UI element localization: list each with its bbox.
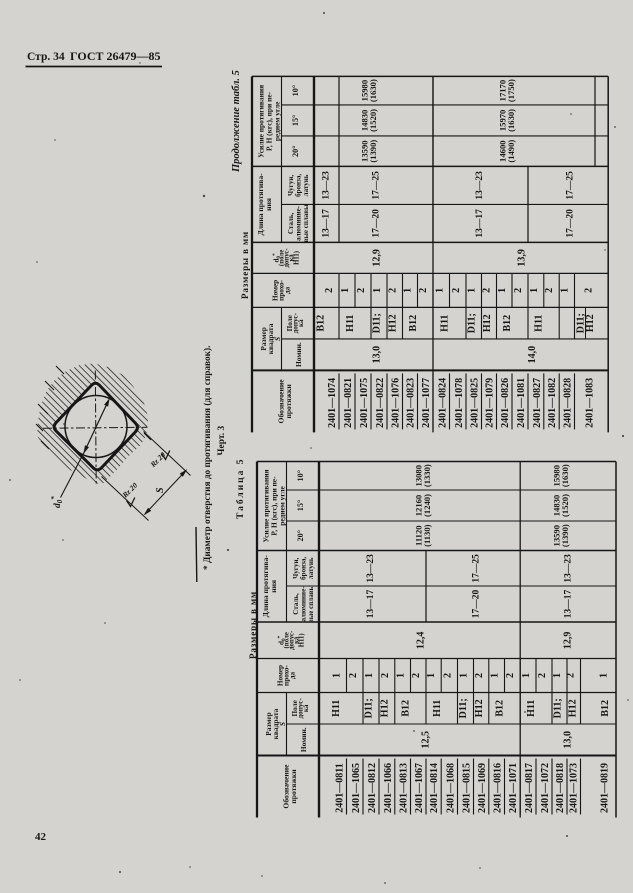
svg-text:1: 1: [396, 673, 407, 678]
svg-text:Стр. 34: Стр. 34: [27, 51, 65, 63]
svg-text:H11: H11: [534, 315, 545, 332]
svg-text:1: 1: [435, 288, 446, 293]
svg-text:1: 1: [459, 673, 470, 678]
svg-text:17—25: 17—25: [472, 554, 482, 583]
svg-text:10°: 10°: [296, 470, 305, 481]
svg-text:13—23: 13—23: [366, 554, 376, 583]
svg-text:2401—1066: 2401—1066: [383, 763, 394, 813]
svg-text:H12: H12: [474, 699, 485, 717]
svg-text:14,0: 14,0: [527, 346, 538, 364]
svg-text:B12: B12: [495, 700, 506, 717]
svg-text:12,9: 12,9: [372, 249, 383, 267]
svg-text:20°: 20°: [296, 530, 305, 541]
svg-text:1: 1: [403, 288, 414, 293]
svg-text:2401—0814: 2401—0814: [429, 763, 440, 813]
svg-text:2401—1081: 2401—1081: [516, 378, 527, 428]
svg-text:(1240): (1240): [422, 494, 432, 517]
svg-text:* Диаметр отверстия до протяги: * Диаметр отверстия до протягивания (для…: [202, 346, 213, 570]
svg-text:вые сплавы: вые сплавы: [302, 204, 310, 242]
svg-text:2: 2: [356, 288, 367, 293]
svg-text:2401—0828: 2401—0828: [563, 378, 574, 428]
svg-text:2401—1074: 2401—1074: [327, 378, 338, 428]
svg-text:2: 2: [451, 288, 462, 293]
svg-text:(1330): (1330): [422, 464, 432, 487]
svg-text:2401—1077: 2401—1077: [421, 378, 432, 428]
svg-text:2401—1083: 2401—1083: [585, 378, 596, 428]
svg-text:H12: H12: [585, 314, 596, 332]
svg-text:2: 2: [584, 288, 595, 293]
svg-text:15°: 15°: [296, 500, 305, 511]
svg-text:2: 2: [418, 288, 429, 293]
svg-text:S: S: [273, 337, 282, 341]
svg-text:1: 1: [332, 673, 343, 678]
svg-text:17—20: 17—20: [472, 590, 482, 619]
svg-text:2401—0823: 2401—0823: [406, 378, 417, 428]
svg-text:12,9: 12,9: [563, 632, 574, 650]
svg-text:1: 1: [560, 288, 571, 293]
svg-text:B12: B12: [408, 315, 419, 332]
svg-text:H12: H12: [388, 314, 399, 332]
svg-text:D11;: D11;: [553, 698, 564, 718]
svg-text:1: 1: [467, 288, 478, 293]
svg-text:20°: 20°: [291, 145, 300, 156]
svg-text:(1630): (1630): [368, 79, 378, 102]
svg-text:2401—0816: 2401—0816: [493, 763, 504, 813]
svg-text:2: 2: [324, 288, 335, 293]
svg-text:S: S: [155, 487, 166, 493]
svg-text:2401—0821: 2401—0821: [343, 378, 354, 428]
svg-text:Н11): Н11): [294, 251, 301, 265]
svg-text:13—17: 13—17: [475, 209, 485, 238]
svg-text:17—25: 17—25: [372, 171, 382, 200]
svg-text:15°: 15°: [291, 115, 300, 126]
svg-text:2: 2: [566, 673, 577, 678]
svg-text:D11;: D11;: [467, 313, 478, 333]
svg-text:2401—0825: 2401—0825: [470, 378, 481, 428]
svg-text:протяжки: протяжки: [289, 769, 298, 804]
svg-text:(1520): (1520): [560, 494, 570, 517]
svg-text:протяжки: протяжки: [284, 384, 293, 419]
svg-text:H12: H12: [568, 699, 579, 717]
svg-text:13,0: 13,0: [563, 731, 574, 749]
svg-text:10°: 10°: [291, 85, 300, 96]
svg-text:H11: H11: [526, 700, 537, 717]
svg-text:13,9: 13,9: [517, 249, 528, 267]
svg-text:2401—1065: 2401—1065: [351, 763, 362, 813]
svg-text:(1390): (1390): [368, 140, 378, 163]
svg-text:1: 1: [372, 288, 383, 293]
svg-text:H11: H11: [331, 700, 342, 717]
svg-text:2: 2: [505, 673, 516, 678]
svg-text:2401—1075: 2401—1075: [359, 378, 370, 428]
svg-text:2401—0815: 2401—0815: [462, 763, 473, 813]
svg-text:да: да: [289, 671, 297, 679]
svg-text:12,5: 12,5: [421, 731, 432, 749]
svg-text:2401—1073: 2401—1073: [569, 763, 580, 813]
svg-text:2: 2: [411, 673, 422, 678]
svg-text:вые сплавы: вые сплавы: [307, 585, 315, 623]
svg-text:(1630): (1630): [506, 109, 516, 132]
svg-text:D11;: D11;: [364, 698, 375, 718]
svg-text:12,4: 12,4: [416, 632, 427, 650]
svg-text:2: 2: [544, 288, 555, 293]
svg-text:(1390): (1390): [560, 524, 570, 547]
svg-text:1: 1: [364, 673, 375, 678]
svg-text:(1520): (1520): [368, 109, 378, 132]
svg-text:2401—0818: 2401—0818: [555, 763, 566, 813]
svg-text:ка: ка: [302, 704, 310, 712]
svg-text:Размеры в мм: Размеры в мм: [240, 231, 250, 299]
svg-text:латунь: латунь: [302, 174, 310, 196]
svg-text:2401—1082: 2401—1082: [547, 378, 558, 428]
svg-text:D11;: D11;: [372, 313, 383, 333]
svg-text:1: 1: [497, 288, 508, 293]
svg-text:13,0: 13,0: [372, 346, 383, 364]
svg-text:2401—1069: 2401—1069: [477, 763, 488, 813]
svg-text:H11: H11: [440, 315, 451, 332]
svg-text:2401—1072: 2401—1072: [540, 763, 551, 813]
svg-text:2: 2: [388, 288, 399, 293]
svg-text:(1130): (1130): [422, 524, 432, 547]
svg-text:17—25: 17—25: [566, 171, 576, 200]
svg-text:13—17: 13—17: [366, 590, 376, 619]
svg-text:2401—1076: 2401—1076: [391, 378, 402, 428]
svg-text:1: 1: [521, 673, 532, 678]
svg-text:Продолжение табл. 5: Продолжение табл. 5: [231, 70, 242, 173]
svg-text:13—23: 13—23: [564, 554, 574, 583]
svg-text:латунь: латунь: [307, 557, 315, 579]
svg-text:ния: ния: [264, 198, 273, 211]
svg-text:2401—1071: 2401—1071: [508, 763, 519, 813]
svg-text:B12: B12: [600, 700, 611, 717]
svg-text:Таблица 5: Таблица 5: [235, 457, 246, 519]
svg-text:ка: ка: [297, 319, 305, 327]
svg-text:1: 1: [490, 673, 501, 678]
svg-text:2401—0813: 2401—0813: [399, 763, 410, 813]
svg-text:17—20: 17—20: [566, 209, 576, 238]
svg-text:2: 2: [537, 673, 548, 678]
svg-text:2: 2: [443, 673, 454, 678]
svg-text:ния: ния: [269, 580, 278, 593]
svg-text:(1630): (1630): [560, 464, 570, 487]
svg-text:13—17: 13—17: [564, 590, 574, 619]
svg-text:2401—0812: 2401—0812: [367, 763, 378, 813]
svg-text:2401—0826: 2401—0826: [500, 378, 511, 428]
svg-text:S: S: [278, 722, 287, 726]
svg-text:2: 2: [474, 673, 485, 678]
svg-text:(1750): (1750): [506, 79, 516, 102]
svg-text:2401—1078: 2401—1078: [454, 378, 465, 428]
svg-text:13—23: 13—23: [322, 171, 332, 200]
svg-text:2: 2: [380, 673, 391, 678]
svg-text:2401—1067: 2401—1067: [414, 763, 425, 813]
svg-text:ГОСТ 26479—85: ГОСТ 26479—85: [70, 49, 161, 63]
svg-text:B12: B12: [316, 315, 327, 332]
svg-text:Н11): Н11): [299, 633, 306, 647]
svg-text:2401—0827: 2401—0827: [532, 378, 543, 428]
svg-text:2: 2: [513, 288, 524, 293]
svg-text:42: 42: [35, 831, 47, 843]
svg-text:17—20: 17—20: [372, 209, 382, 238]
svg-text:1: 1: [426, 673, 437, 678]
svg-text:1: 1: [340, 288, 351, 293]
svg-text:2: 2: [482, 288, 493, 293]
svg-text:2401—1079: 2401—1079: [485, 378, 496, 428]
svg-text:1: 1: [529, 288, 540, 293]
svg-text:2401—0819: 2401—0819: [600, 763, 611, 813]
svg-text:2401—0811: 2401—0811: [335, 763, 346, 812]
svg-text:1: 1: [552, 673, 563, 678]
svg-text:реднем угле: реднем угле: [273, 101, 282, 141]
svg-text:H12: H12: [482, 314, 493, 332]
svg-text:2401—0817: 2401—0817: [524, 763, 535, 813]
svg-text:B12: B12: [502, 315, 513, 332]
svg-text:(1490): (1490): [506, 140, 516, 163]
svg-text:1: 1: [599, 673, 610, 678]
svg-text:2401—0824: 2401—0824: [438, 378, 449, 428]
svg-text:Номин.: Номин.: [294, 342, 303, 367]
svg-text:D11;: D11;: [458, 698, 469, 718]
svg-text:13—23: 13—23: [475, 171, 485, 200]
svg-text:2401—1068: 2401—1068: [446, 763, 457, 813]
svg-text:13—17: 13—17: [322, 209, 332, 238]
svg-text:B12: B12: [400, 700, 411, 717]
svg-text:2401—0822: 2401—0822: [375, 378, 386, 428]
svg-text:да: да: [284, 286, 292, 294]
svg-text:2: 2: [348, 673, 359, 678]
svg-text:H11: H11: [432, 700, 443, 717]
svg-text:Номин.: Номин.: [299, 727, 308, 752]
svg-text:реднем угле: реднем угле: [278, 486, 287, 526]
svg-text:Черт. 3: Черт. 3: [217, 425, 227, 455]
svg-text:H11: H11: [345, 315, 356, 332]
svg-text:H12: H12: [380, 699, 391, 717]
